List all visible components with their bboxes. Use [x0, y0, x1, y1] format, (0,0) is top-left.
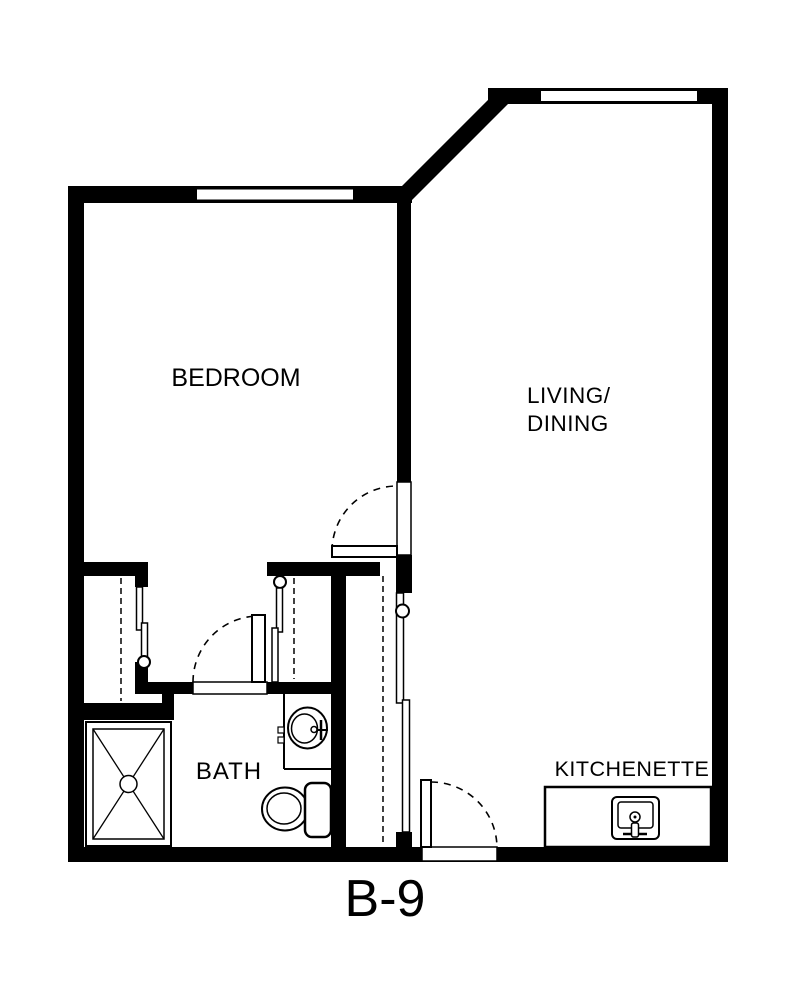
bedroom-living-divider-wall: [397, 200, 411, 482]
hall-wall-top-block: [396, 555, 412, 593]
entry-door-leaf: [421, 780, 431, 847]
shower-top-wall: [68, 703, 174, 720]
closet-door-panel: [277, 588, 283, 632]
bedroom-label: BEDROOM: [171, 364, 300, 392]
bath-north-wall-left: [135, 682, 193, 694]
kitchenette-label: KITCHENETTE: [555, 757, 710, 781]
bath-door-swing-arc: [193, 616, 259, 682]
jamb-notch: [148, 694, 162, 703]
living-dining-label-line1: LIVING/: [527, 383, 611, 408]
kitchenette-counter: [545, 787, 711, 847]
living-dining-label-line2: DINING: [527, 411, 609, 436]
hall-wall-bottom-block: [396, 832, 412, 848]
bath-label: BATH: [196, 758, 262, 785]
sliding-door-panel: [403, 700, 410, 832]
toilet: [262, 783, 331, 837]
entry-door-sill: [422, 847, 497, 861]
vanity-hinge: [278, 737, 284, 743]
sink-drain: [311, 727, 317, 733]
vanity-sink: [278, 694, 331, 769]
closet-door-pull: [138, 656, 150, 668]
bath-east-wall: [331, 562, 346, 847]
entry-door-swing-arc: [431, 782, 497, 848]
vanity-hinge: [278, 727, 284, 733]
closet-wall-stub-top: [135, 562, 148, 587]
bedroom-door: [332, 486, 397, 557]
bath-north-wall-filler: [162, 694, 174, 703]
shower-drain: [120, 776, 137, 793]
hall-sliding-door: [383, 576, 410, 846]
closet-door-panel: [272, 628, 278, 682]
kitchenette-faucet-base: [632, 823, 639, 837]
bath-door: [193, 615, 265, 682]
bedroom-door-swing-arc: [332, 486, 397, 551]
bath-door-sill: [193, 682, 267, 694]
diagonal-wall: [400, 96, 504, 200]
bedroom-window: [197, 190, 353, 200]
toilet-tank: [305, 783, 331, 837]
floor-plan: BEDROOM LIVING/ DINING BATH KITCHENETTE …: [0, 0, 796, 998]
unit-label: B-9: [345, 870, 426, 928]
kitchenette-faucet-dot: [634, 816, 637, 819]
toilet-bowl-inner: [267, 793, 301, 824]
bath-door-leaf: [252, 615, 265, 682]
left-wall: [68, 186, 84, 862]
sliding-door-pull: [396, 605, 409, 618]
shower: [86, 722, 171, 846]
bottom-wall: [68, 847, 728, 862]
bedroom-door-opening: [397, 482, 411, 555]
bedroom-south-wall-right: [267, 562, 380, 576]
bedroom-door-leaf: [332, 546, 397, 557]
linen-closet: [272, 576, 294, 682]
closet-door-pull: [274, 576, 286, 588]
right-wall: [712, 88, 728, 862]
living-window: [541, 91, 697, 101]
entry-door: [421, 780, 497, 848]
